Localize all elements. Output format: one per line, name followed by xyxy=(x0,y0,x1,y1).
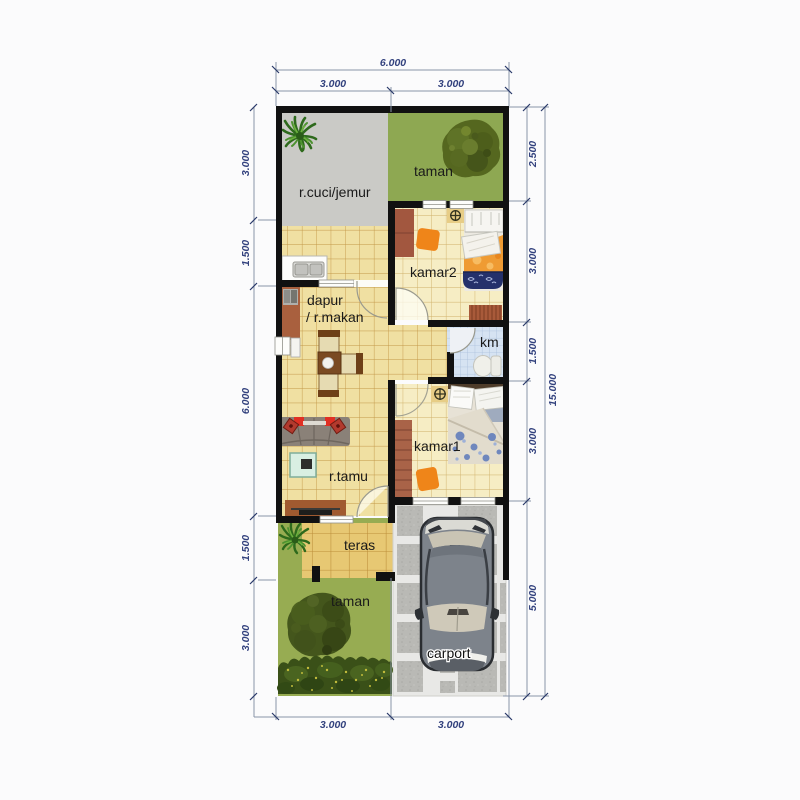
svg-text:3.000: 3.000 xyxy=(527,248,539,274)
svg-text:3.000: 3.000 xyxy=(527,428,539,454)
svg-text:1.500: 1.500 xyxy=(240,240,252,266)
svg-text:6.000: 6.000 xyxy=(380,57,406,69)
svg-text:3.000: 3.000 xyxy=(240,150,252,176)
svg-text:teras: teras xyxy=(344,537,375,553)
svg-text:1.500: 1.500 xyxy=(527,338,539,364)
svg-text:3.000: 3.000 xyxy=(240,625,252,651)
svg-text:3.000: 3.000 xyxy=(438,78,464,90)
svg-text:kamar1: kamar1 xyxy=(414,438,461,454)
svg-text:taman: taman xyxy=(414,163,453,179)
svg-text:dapur: dapur xyxy=(307,292,343,308)
svg-text:/ r.makan: / r.makan xyxy=(306,309,364,325)
svg-text:3.000: 3.000 xyxy=(438,719,464,731)
svg-text:r.tamu: r.tamu xyxy=(329,468,368,484)
svg-text:r.cuci/jemur: r.cuci/jemur xyxy=(299,184,371,200)
svg-text:taman: taman xyxy=(331,593,370,609)
svg-text:6.000: 6.000 xyxy=(240,388,252,414)
svg-text:1.500: 1.500 xyxy=(240,535,252,561)
svg-text:3.000: 3.000 xyxy=(320,78,346,90)
svg-text:5.000: 5.000 xyxy=(527,585,539,611)
svg-text:kamar2: kamar2 xyxy=(410,264,457,280)
svg-text:15.000: 15.000 xyxy=(547,374,559,406)
svg-text:carport: carport xyxy=(427,645,471,661)
svg-text:3.000: 3.000 xyxy=(320,719,346,731)
svg-text:km: km xyxy=(480,334,499,350)
svg-text:2.500: 2.500 xyxy=(527,141,539,168)
